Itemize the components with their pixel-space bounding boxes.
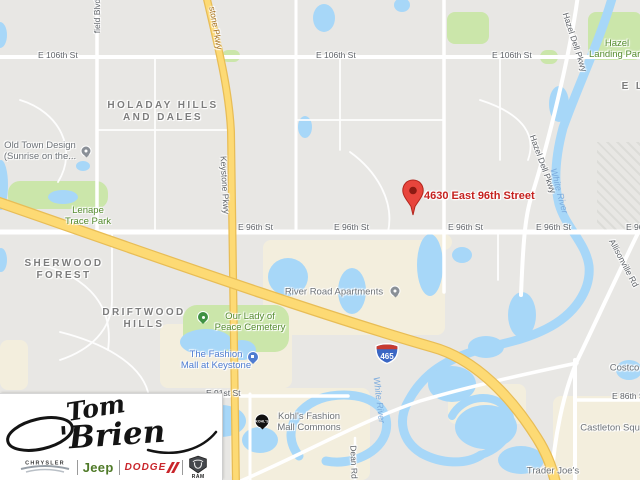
dodge-logo: DODGE xyxy=(125,462,178,473)
brand-divider xyxy=(77,460,78,475)
ram-logo: RAM xyxy=(188,455,208,480)
chrysler-logo: CHRYSLER xyxy=(18,458,72,476)
pin-fashion-mall[interactable] xyxy=(247,351,259,363)
jeep-logo: Jeep xyxy=(83,460,114,475)
pin-old-town-design[interactable] xyxy=(81,146,92,157)
svg-text:'Brien: 'Brien xyxy=(58,414,166,454)
pin-river-road-apartments[interactable] xyxy=(390,286,401,297)
pin-kohls[interactable]: KOHL'S xyxy=(255,414,270,429)
map-screenshot: 465 E 106th StE 106th StE 106th StE 96th… xyxy=(0,0,640,480)
dealer-logo-panel[interactable]: Tom 'Brien CHRYSLER Jeep DODGE xyxy=(0,393,223,480)
pin-our-lady-of-peace[interactable] xyxy=(197,311,209,323)
destination-pin[interactable] xyxy=(402,179,424,217)
brand-divider xyxy=(119,460,120,475)
brand-logos-row: CHRYSLER Jeep DODGE RAM xyxy=(8,454,218,480)
dealer-script-logo: Tom 'Brien xyxy=(0,394,223,454)
ram-head-icon xyxy=(188,455,208,474)
brand-divider xyxy=(182,460,183,475)
